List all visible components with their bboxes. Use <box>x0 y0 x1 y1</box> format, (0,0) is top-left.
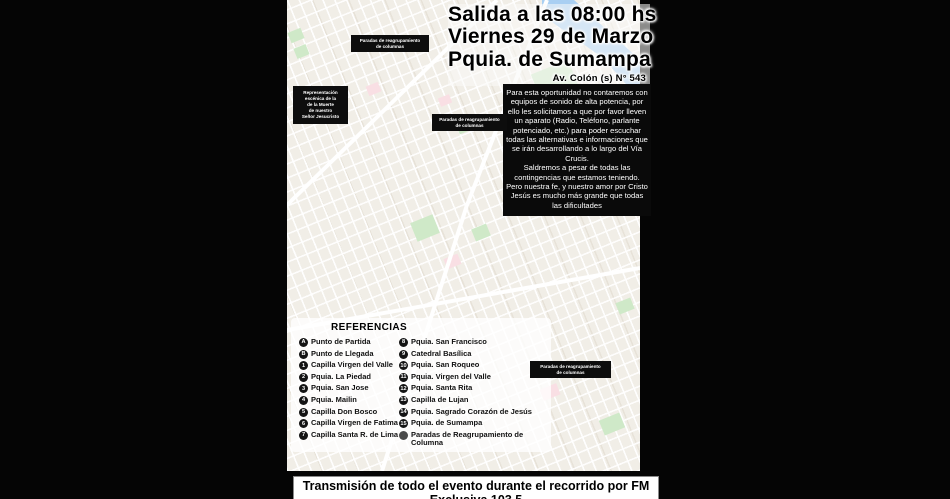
legend-item-label: Punto de Llegada <box>311 350 374 358</box>
legend-item: 7Capilla Santa R. de Lima <box>299 431 399 440</box>
marker-icon: A <box>299 338 308 347</box>
legend-title: REFERENCIAS <box>331 322 549 333</box>
paradas-callout: Paradas de reagrupamientode columnas <box>530 361 611 378</box>
park-area <box>599 412 625 435</box>
legend-item: 9Catedral Basílica <box>399 350 547 359</box>
notice-paragraph-2: Saldremos a pesar de todas las contingen… <box>506 163 648 210</box>
marker-icon: 6 <box>299 419 308 428</box>
legend-item: 12Pquia. Santa Rita <box>399 384 547 393</box>
legend-item: 4Pquia. Mailin <box>299 396 399 405</box>
notice-paragraph-1: Para esta oportunidad no contaremos con … <box>506 88 648 163</box>
right-black-bar <box>640 0 950 471</box>
legend-item-label: Capilla Virgen del Valle <box>311 361 393 369</box>
legend-item: 13Capilla de Lujan <box>399 396 547 405</box>
title-line-2: Viernes 29 de Marzo <box>448 26 650 48</box>
left-black-bar <box>0 0 287 471</box>
legend-item-label: Pquia. La Piedad <box>311 373 371 381</box>
highlight-area <box>366 82 382 96</box>
marker-icon: 2 <box>299 373 308 382</box>
highlight-area <box>438 94 452 107</box>
legend-item: 5Capilla Don Bosco <box>299 408 399 417</box>
legend-item-label: Pquia. San Francisco <box>411 338 487 346</box>
legend-item-label: Pquia. Mailin <box>311 396 357 404</box>
stop-dot-icon <box>399 431 408 440</box>
footer-strip: Transmisión de todo el evento durante el… <box>0 471 950 499</box>
paradas-callout: Paradas de reagrupamientode columnas <box>432 114 507 131</box>
marker-icon: 7 <box>299 431 308 440</box>
legend-item-label: Punto de Partida <box>311 338 371 346</box>
legend-item-label: Pquia. San Roqueo <box>411 361 479 369</box>
park-area <box>615 297 634 314</box>
legend-item-label: Pquia. Santa Rita <box>411 384 472 392</box>
park-area <box>293 44 309 59</box>
legend-item-label: Catedral Basílica <box>411 350 471 358</box>
marker-icon: 11 <box>399 373 408 382</box>
legend-item: Paradas de Reagrupamiento de Columna <box>399 431 547 448</box>
legend-item: APunto de Partida <box>299 338 399 347</box>
marker-icon: B <box>299 350 308 359</box>
marker-icon: 8 <box>399 338 408 347</box>
legend-item: 3Pquia. San Jose <box>299 384 399 393</box>
via-crucis-flyer: Salida a las 08:00 hs Viernes 29 de Marz… <box>0 0 950 499</box>
marker-icon: 12 <box>399 384 408 393</box>
legend-item-label: Paradas de Reagrupamiento de Columna <box>411 431 547 448</box>
legend-item-label: Capilla de Lujan <box>411 396 469 404</box>
legend: REFERENCIAS APunto de PartidaBPunto de L… <box>291 318 551 452</box>
park-area <box>287 28 304 43</box>
legend-item-label: Pquia. Virgen del Valle <box>411 373 491 381</box>
marker-icon: 15 <box>399 419 408 428</box>
legend-item-label: Capilla Virgen de Fatima <box>311 419 398 427</box>
marker-icon: 5 <box>299 408 308 417</box>
marker-icon: 3 <box>299 384 308 393</box>
legend-item: 11Pquia. Virgen del Valle <box>399 373 547 382</box>
broadcast-banner: Transmisión de todo el evento durante el… <box>293 476 659 499</box>
legend-item: 10Pquia. San Roqueo <box>399 361 547 370</box>
title-line-3: Pquia. de Sumampa <box>448 49 650 71</box>
legend-column-1: APunto de PartidaBPunto de Llegada1Capil… <box>299 338 399 448</box>
legend-item-label: Capilla Santa R. de Lima <box>311 431 398 439</box>
marker-icon: 10 <box>399 361 408 370</box>
legend-item: 8Pquia. San Francisco <box>399 338 547 347</box>
park-area <box>410 214 440 242</box>
marker-icon: 4 <box>299 396 308 405</box>
legend-item: 1Capilla Virgen del Valle <box>299 361 399 370</box>
marker-icon: 13 <box>399 396 408 405</box>
legend-item: 6Capilla Virgen de Fatima <box>299 419 399 428</box>
legend-item: BPunto de Llegada <box>299 350 399 359</box>
park-area <box>471 223 491 241</box>
legend-item-label: Pquia. de Sumampa <box>411 419 482 427</box>
legend-item: 15Pquia. de Sumampa <box>399 419 547 428</box>
title-line-1: Salida a las 08:00 hs <box>448 4 650 26</box>
marker-icon: 1 <box>299 361 308 370</box>
legend-item-label: Pquia. Sagrado Corazón de Jesús <box>411 408 532 416</box>
scene-callout: Representaciónescénica de lade la Muerte… <box>293 86 348 124</box>
notice-panel: Para esta oportunidad no contaremos con … <box>503 84 651 216</box>
paradas-callout: Paradas de reagrupamientode columnas <box>351 35 429 52</box>
legend-item: 2Pquia. La Piedad <box>299 373 399 382</box>
marker-icon: 9 <box>399 350 408 359</box>
legend-column-2: 8Pquia. San Francisco9Catedral Basílica1… <box>399 338 547 448</box>
marker-icon: 14 <box>399 408 408 417</box>
legend-item-label: Capilla Don Bosco <box>311 408 377 416</box>
legend-item-label: Pquia. San Jose <box>311 384 369 392</box>
legend-item: 14Pquia. Sagrado Corazón de Jesús <box>399 408 547 417</box>
title-block: Salida a las 08:00 hs Viernes 29 de Marz… <box>448 4 650 86</box>
